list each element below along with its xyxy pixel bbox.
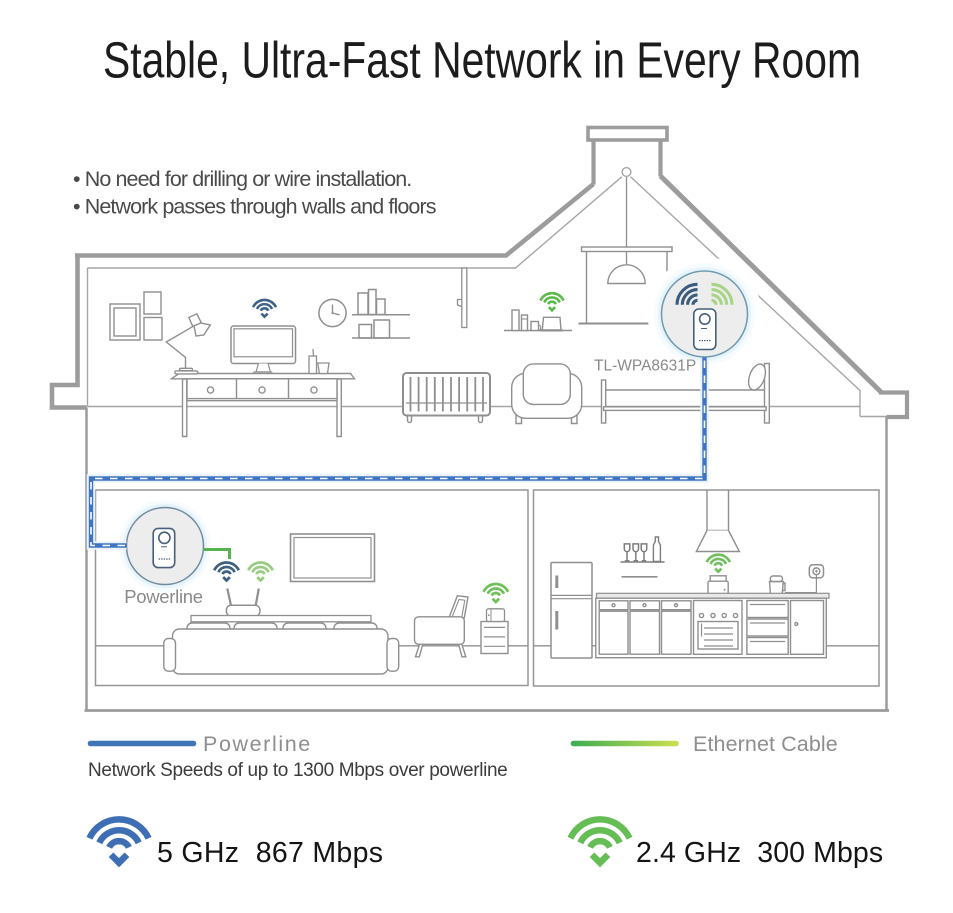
svg-text:• Network passes through walls: • Network passes through walls and floor… bbox=[73, 195, 436, 219]
svg-text:5 GHz 867 Mbps: 5 GHz 867 Mbps bbox=[157, 837, 383, 869]
svg-text:Network Speeds of up to 1300 M: Network Speeds of up to 1300 Mbps over p… bbox=[88, 760, 507, 781]
svg-text:2.4 GHz 300 Mbps: 2.4 GHz 300 Mbps bbox=[636, 837, 883, 869]
svg-text:• No need for drilling or wire: • No need for drilling or wire installat… bbox=[73, 167, 411, 191]
svg-text:Powerline: Powerline bbox=[124, 586, 203, 607]
svg-text:Stable, Ultra-Fast Network in: Stable, Ultra-Fast Network in Every Room bbox=[103, 32, 861, 89]
svg-text:TL-WPA8631P: TL-WPA8631P bbox=[594, 358, 696, 375]
svg-text:Ethernet Cable: Ethernet Cable bbox=[693, 732, 838, 756]
svg-text:Powerline: Powerline bbox=[203, 732, 312, 756]
